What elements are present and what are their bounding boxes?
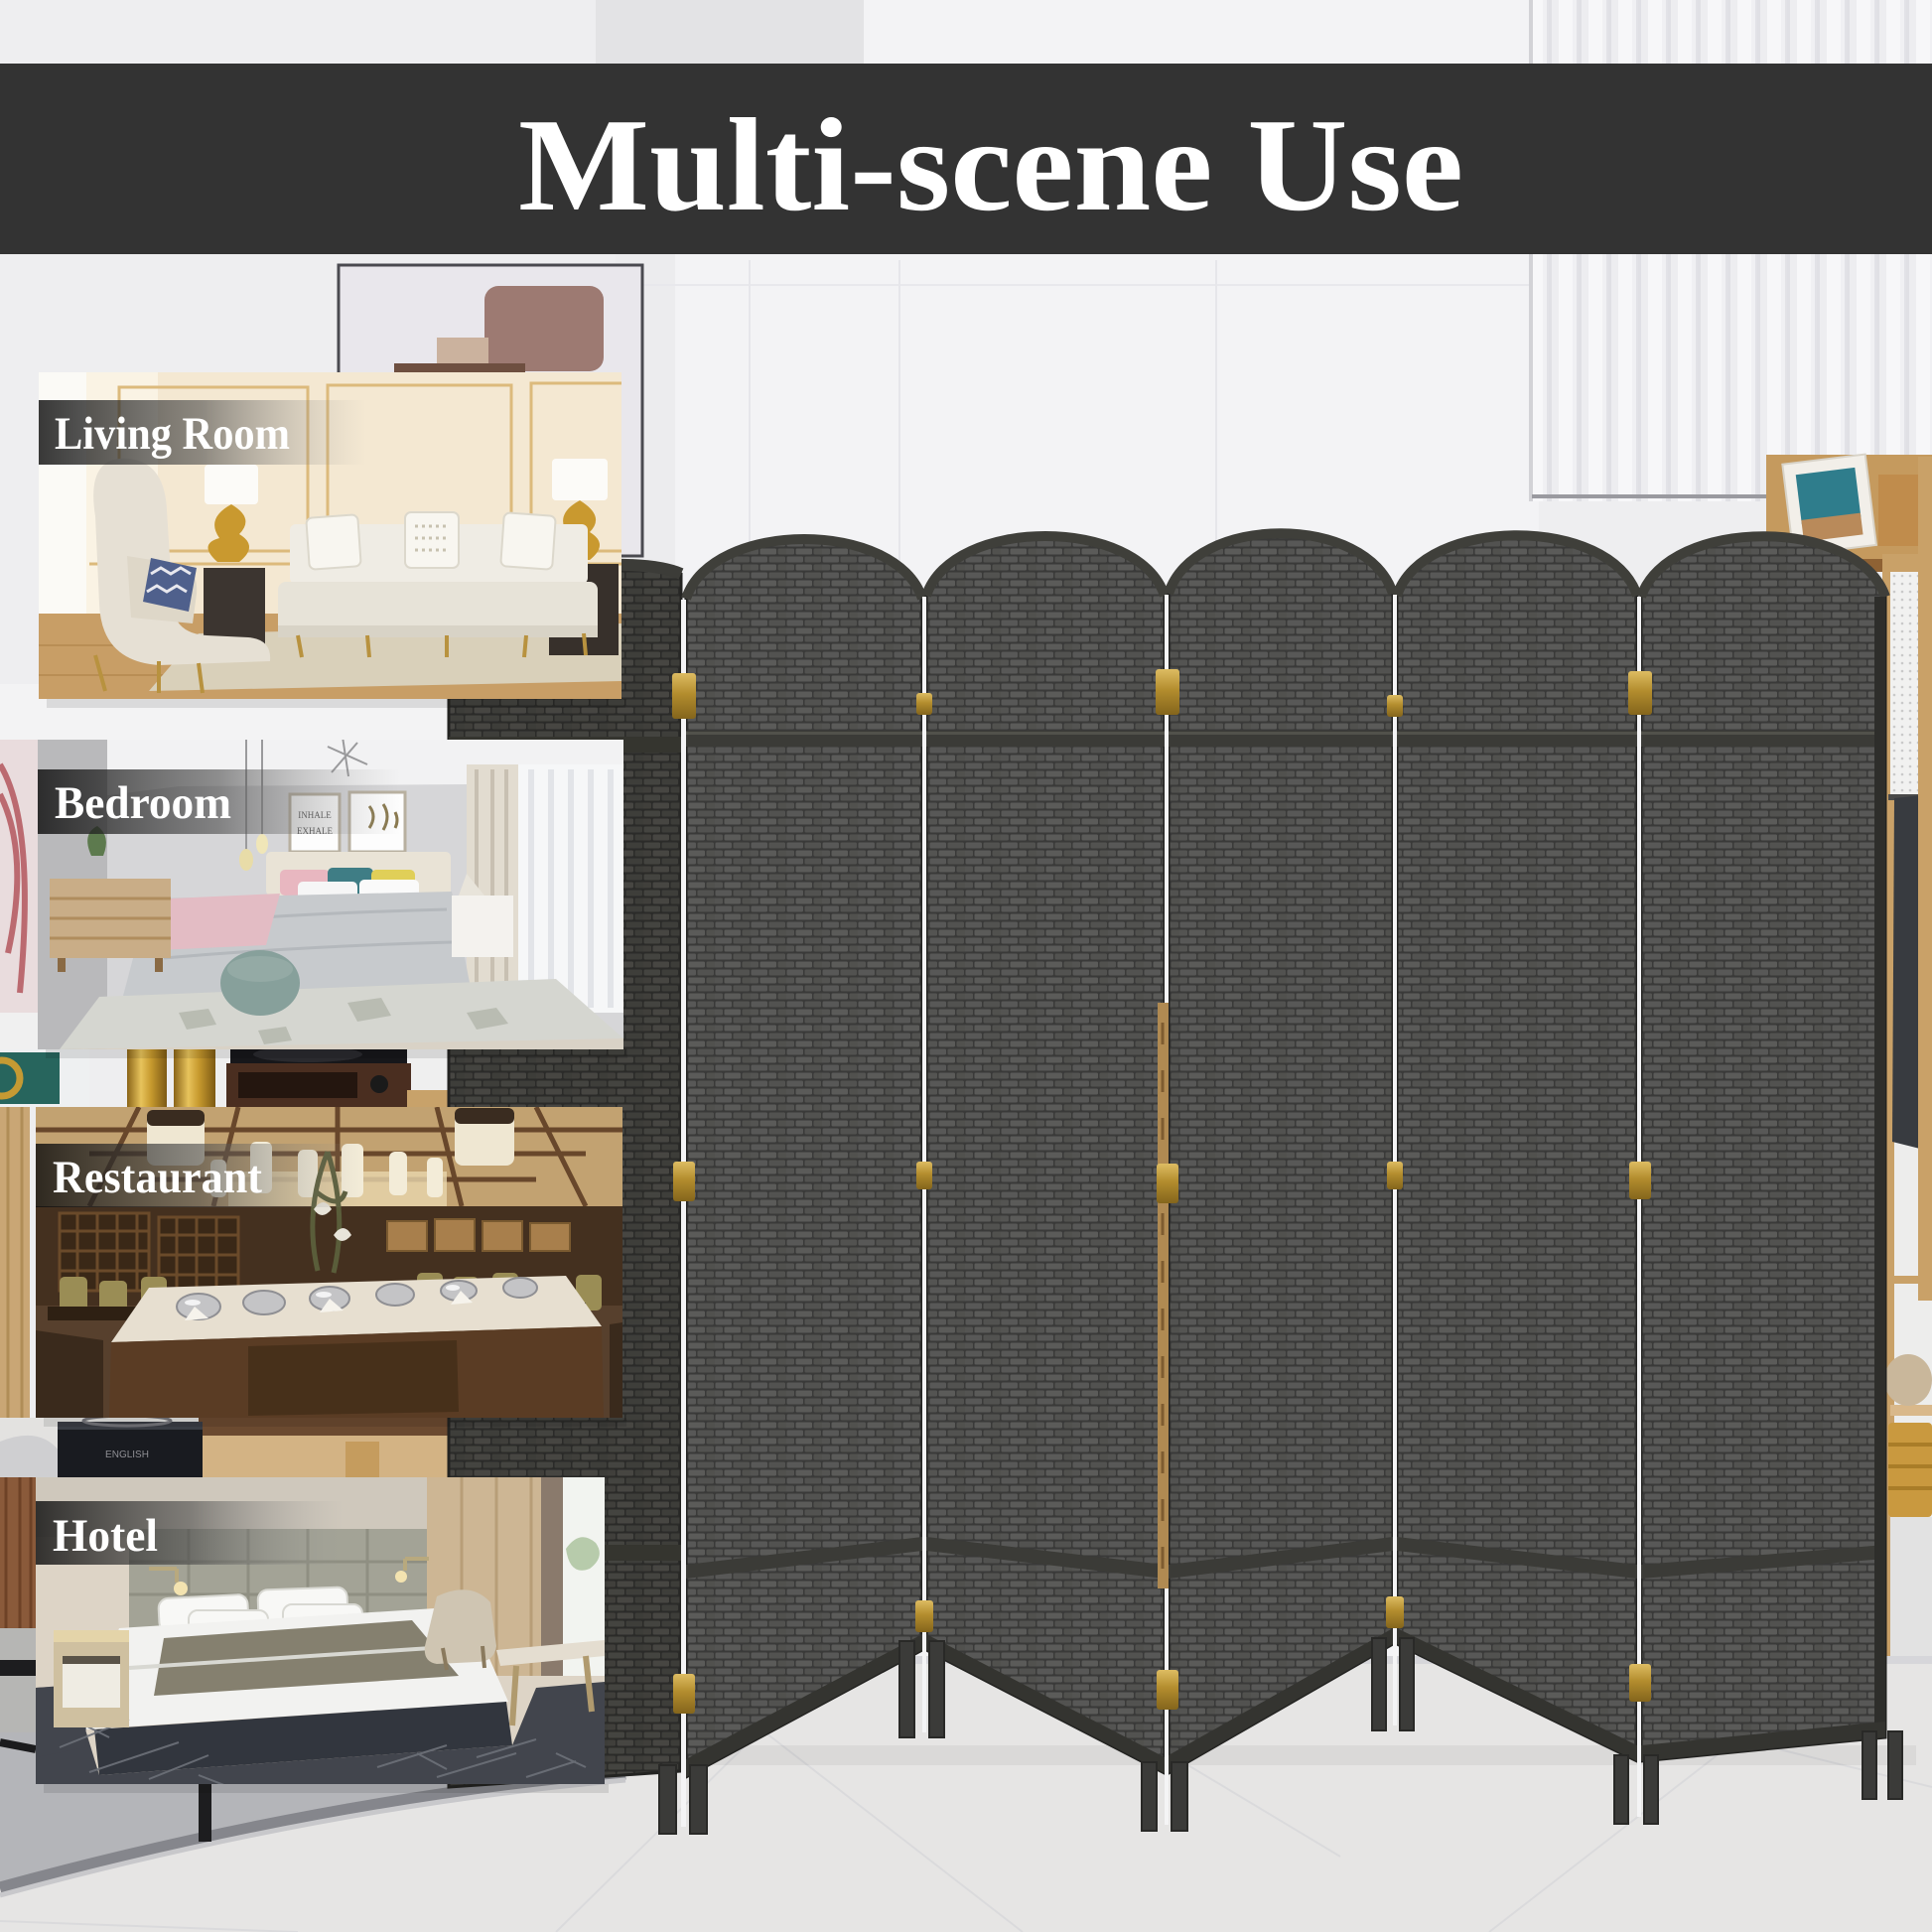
svg-text:Hotel: Hotel <box>53 1510 158 1562</box>
svg-text:Living Room: Living Room <box>55 408 290 460</box>
svg-text:ENGLISH: ENGLISH <box>105 1449 149 1460</box>
svg-text:Restaurant: Restaurant <box>53 1152 262 1203</box>
svg-text:Bedroom: Bedroom <box>55 777 231 829</box>
svg-text:Multi-scene Use: Multi-scene Use <box>518 91 1463 238</box>
